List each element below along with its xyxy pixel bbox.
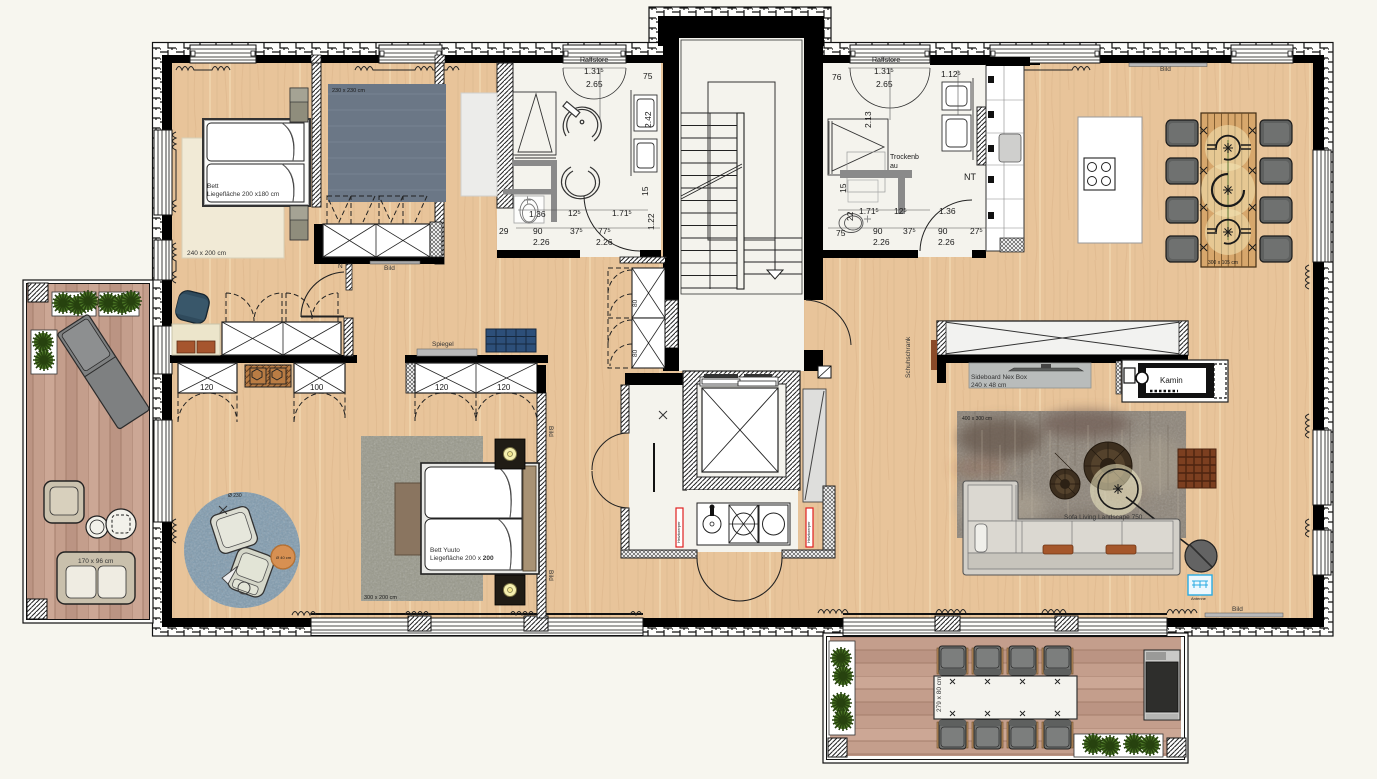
svg-text:2.26: 2.26: [938, 237, 955, 247]
svg-text:Bild: Bild: [547, 426, 554, 437]
svg-text:2.42: 2.42: [643, 111, 653, 128]
svg-text:400 x 300 cm: 400 x 300 cm: [962, 416, 992, 422]
svg-text:Schuhschrank: Schuhschrank: [905, 336, 912, 378]
svg-text:1.22: 1.22: [646, 213, 656, 230]
svg-text:Ø 230: Ø 230: [228, 493, 242, 499]
svg-text:Antenne: Antenne: [1191, 596, 1207, 601]
svg-text:170 x 96 cm: 170 x 96 cm: [78, 558, 113, 565]
svg-text:1.36: 1.36: [939, 206, 956, 216]
svg-text:75: 75: [836, 228, 846, 238]
svg-text:120: 120: [497, 383, 511, 392]
svg-text:29: 29: [499, 226, 509, 236]
svg-text:120: 120: [435, 383, 449, 392]
svg-text:240 x 200 cm: 240 x 200 cm: [187, 250, 226, 257]
svg-text:Heizkoerper: Heizkoerper: [676, 521, 681, 543]
svg-text:Bild: Bild: [1232, 606, 1243, 613]
svg-text:Raffstore: Raffstore: [872, 57, 900, 64]
svg-text:2.26: 2.26: [533, 237, 550, 247]
svg-text:76: 76: [832, 72, 842, 82]
svg-text:120: 120: [200, 383, 214, 392]
svg-text:300 x 200 cm: 300 x 200 cm: [364, 595, 397, 601]
svg-text:300 x 105 cm: 300 x 105 cm: [1208, 260, 1238, 266]
svg-text:1.36: 1.36: [529, 209, 546, 219]
svg-text:Ø 40 cm: Ø 40 cm: [276, 555, 292, 560]
svg-text:Bild: Bild: [384, 265, 395, 272]
svg-text:90: 90: [938, 226, 948, 236]
svg-text:N: N: [338, 263, 343, 270]
svg-text:Raffstore: Raffstore: [580, 57, 608, 64]
svg-text:15: 15: [640, 186, 650, 196]
svg-text:80: 80: [632, 349, 639, 357]
svg-text:Liegefläche 200 x 200: Liegefläche 200 x 200: [430, 555, 494, 562]
svg-text:2.26: 2.26: [873, 237, 890, 247]
svg-text:75: 75: [643, 71, 653, 81]
svg-text:Trockenb: Trockenb: [890, 154, 919, 161]
svg-text:Heizkoerper: Heizkoerper: [806, 521, 811, 543]
svg-text:Liegefläche 200 x180 cm: Liegefläche 200 x180 cm: [207, 191, 279, 198]
svg-text:100: 100: [310, 383, 324, 392]
svg-text:Bild: Bild: [547, 570, 554, 581]
svg-text:Bett Yuuto: Bett Yuuto: [430, 547, 460, 554]
svg-text:80: 80: [632, 299, 639, 307]
svg-text:Sofa Living Landscape 750: Sofa Living Landscape 750: [1064, 514, 1143, 521]
svg-text:230 x 230 cm: 230 x 230 cm: [332, 88, 365, 94]
svg-text:240 x 48 cm: 240 x 48 cm: [971, 382, 1006, 389]
svg-text:90: 90: [873, 226, 883, 236]
svg-text:15: 15: [838, 183, 848, 193]
svg-text:Sideboard Nex Box: Sideboard Nex Box: [971, 374, 1028, 381]
svg-text:Bild: Bild: [1160, 66, 1171, 73]
svg-text:Bett: Bett: [207, 183, 219, 190]
svg-text:22: 22: [845, 211, 855, 221]
svg-text:279 x 80 cm: 279 x 80 cm: [936, 677, 943, 712]
svg-text:Spiegel: Spiegel: [432, 341, 454, 348]
svg-text:90: 90: [533, 226, 543, 236]
svg-text:2.13: 2.13: [863, 111, 873, 128]
svg-text:au: au: [890, 163, 898, 170]
svg-text:NT: NT: [964, 172, 976, 182]
svg-text:Kamin: Kamin: [1160, 376, 1183, 385]
